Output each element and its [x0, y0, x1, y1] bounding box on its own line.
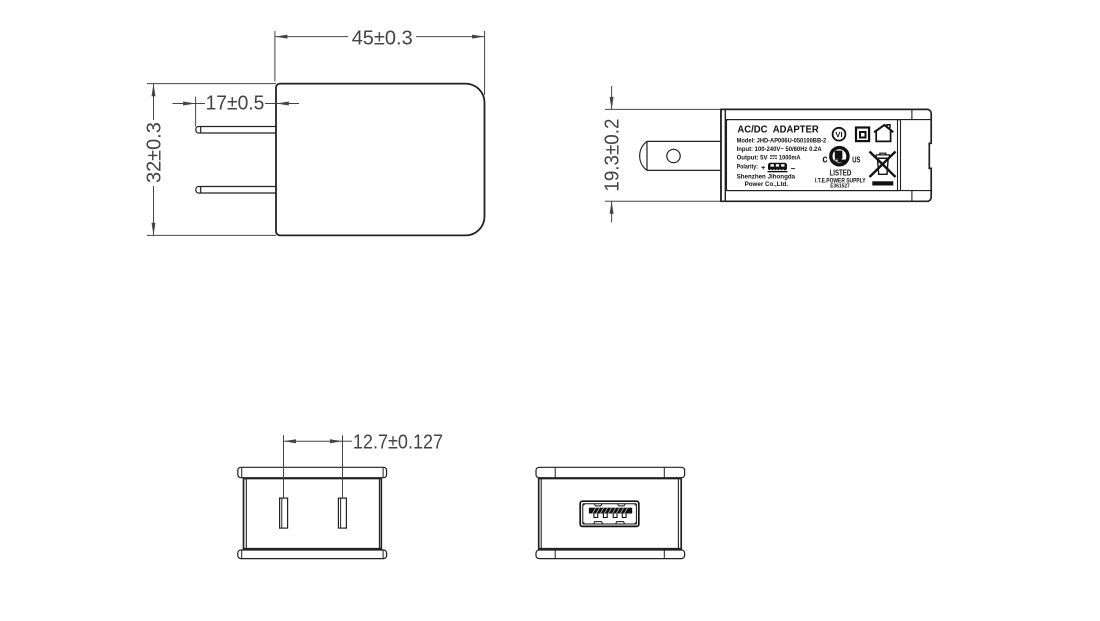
svg-text:1000mA: 1000mA	[779, 154, 801, 161]
svg-text:AC/DC ADAPTER: AC/DC ADAPTER	[737, 125, 819, 136]
svg-text:Power Co.,Ltd.: Power Co.,Ltd.	[745, 181, 789, 188]
svg-text:32±0.3: 32±0.3	[144, 122, 166, 183]
svg-text:−: −	[791, 164, 796, 173]
svg-text:Model: JHD-AP006U-050100BB-2: Model: JHD-AP006U-050100BB-2	[737, 138, 827, 145]
svg-text:E361527: E361527	[830, 184, 850, 190]
svg-text:12.7±0.127: 12.7±0.127	[353, 431, 443, 453]
svg-text:LISTED: LISTED	[830, 167, 852, 177]
svg-text:VI: VI	[835, 130, 842, 139]
svg-text:US: US	[852, 155, 860, 164]
svg-text:c: c	[822, 153, 827, 165]
svg-text:Shenzhen Jihongda: Shenzhen Jihongda	[737, 173, 796, 180]
svg-text:Input: 100-240V~ 50/60Hz 0.2: Input: 100-240V~ 50/60Hz 0.2A	[737, 146, 822, 153]
svg-text:Polarity:: Polarity:	[737, 164, 758, 171]
svg-text:Output: 5V: Output: 5V	[737, 154, 769, 161]
svg-text:19.3±0.2: 19.3±0.2	[601, 119, 623, 192]
svg-text:17±0.5: 17±0.5	[206, 93, 265, 115]
svg-text:+: +	[761, 163, 766, 172]
svg-text:45±0.3: 45±0.3	[352, 28, 413, 50]
